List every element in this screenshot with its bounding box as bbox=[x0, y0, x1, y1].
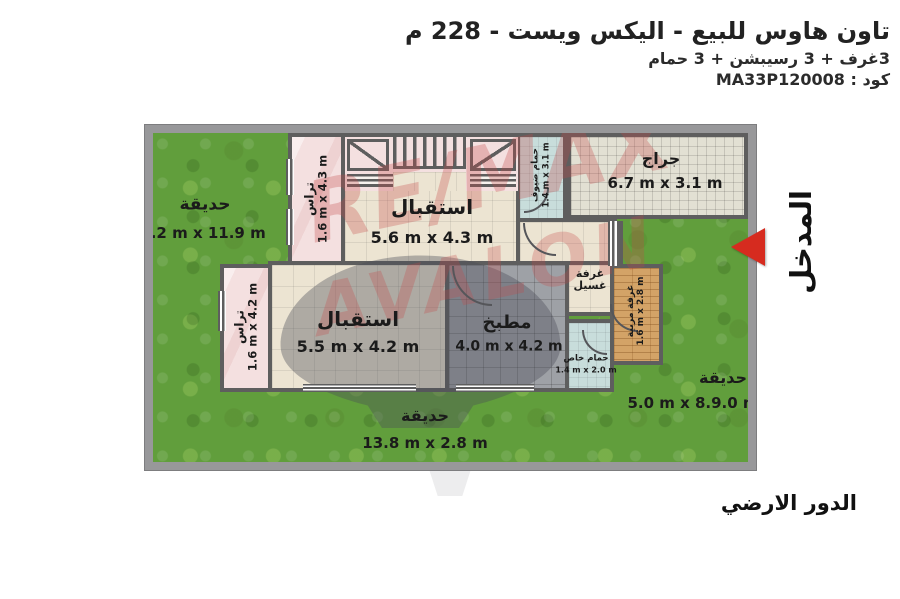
private-bath-dims: 1.4 m x 2.0 m bbox=[555, 367, 616, 376]
terrace1-name: تراس bbox=[302, 155, 317, 243]
staircase-flight-right bbox=[470, 139, 516, 171]
staircase-landing bbox=[393, 172, 466, 191]
window-kitchen bbox=[456, 384, 534, 392]
nanny-dims: 1.6 m x 2.8 m bbox=[636, 277, 647, 346]
rooms-summary: 3غرف + 3 رسيبشن + 3 حمام bbox=[405, 49, 890, 68]
staircase-flight-left bbox=[347, 139, 389, 171]
garden-bottom-dims: 13.8 m x 2.8 m bbox=[362, 435, 487, 452]
guest-bath-name: حمام ضيوف bbox=[531, 142, 542, 207]
floor-plan: RE/MAX AVALON حديقة 5.2 m x 11.9 m تراس … bbox=[145, 125, 756, 470]
guest-bath-dims: 1.4 m x 3.1 m bbox=[541, 142, 551, 207]
staircase-treads bbox=[393, 137, 466, 169]
listing-code: كود : MA33P120008 bbox=[405, 70, 890, 89]
laundry-label: غرفة غسيل bbox=[569, 268, 611, 292]
window-terrace1-a bbox=[286, 159, 294, 195]
kitchen-dims: 4.0 m x 4.2 m bbox=[455, 339, 562, 354]
garden-left-label: حديقة bbox=[180, 196, 231, 215]
garden-left-dims: 5.2 m x 11.9 m bbox=[145, 225, 266, 242]
window-reception2 bbox=[303, 384, 416, 392]
reception2-dims: 5.5 m x 4.2 m bbox=[297, 338, 420, 356]
window-terrace1-b bbox=[286, 209, 294, 245]
entrance-arrow-icon bbox=[731, 228, 765, 266]
entrance-label: المدخل bbox=[784, 190, 818, 294]
header: تاون هاوس للبيع - اليكس ويست - 228 م 3غر… bbox=[405, 16, 890, 89]
nanny-label: غرفة مربية 1.6 m x 2.8 m bbox=[625, 277, 647, 346]
garage-dims: 6.7 m x 3.1 m bbox=[608, 175, 723, 192]
staircase-rail-left bbox=[347, 174, 393, 187]
nanny-name: غرفة مربية bbox=[625, 277, 636, 346]
garden-bottom-label: حديقة bbox=[401, 407, 449, 425]
garden-right-dims: 5.0 m x 8.9.0 m bbox=[627, 395, 756, 412]
kitchen-label: مطبخ bbox=[483, 313, 532, 333]
terrace2-dims: 1.6 m x 4.2 m bbox=[247, 283, 261, 371]
private-bath-label: حمام خاص bbox=[564, 354, 609, 363]
reception1-label: استقبال bbox=[391, 196, 473, 218]
staircase-rail-right bbox=[470, 174, 516, 187]
garage-label: جراج bbox=[642, 150, 681, 168]
terrace2-name: تراس bbox=[232, 283, 247, 371]
garden-right-label: حديقة bbox=[699, 369, 747, 387]
terrace2-label: تراس 1.6 m x 4.2 m bbox=[232, 283, 261, 371]
page-title: تاون هاوس للبيع - اليكس ويست - 228 م bbox=[405, 16, 890, 46]
watermark-balloon-basket bbox=[428, 466, 472, 496]
floor-name-label: الدور الارضي bbox=[721, 491, 857, 515]
reception2-label: استقبال bbox=[317, 308, 399, 330]
reception1-dims: 5.6 m x 4.3 m bbox=[371, 229, 494, 247]
terrace1-dims: 1.6 m x 4.3 m bbox=[317, 155, 331, 243]
entry-door bbox=[608, 221, 623, 266]
terrace1-label: تراس 1.6 m x 4.3 m bbox=[302, 155, 331, 243]
floorplan-page: تاون هاوس للبيع - اليكس ويست - 228 م 3غر… bbox=[0, 0, 900, 599]
guest-bath-label: حمام ضيوف 1.4 m x 3.1 m bbox=[531, 142, 552, 207]
window-terrace2 bbox=[218, 291, 226, 331]
